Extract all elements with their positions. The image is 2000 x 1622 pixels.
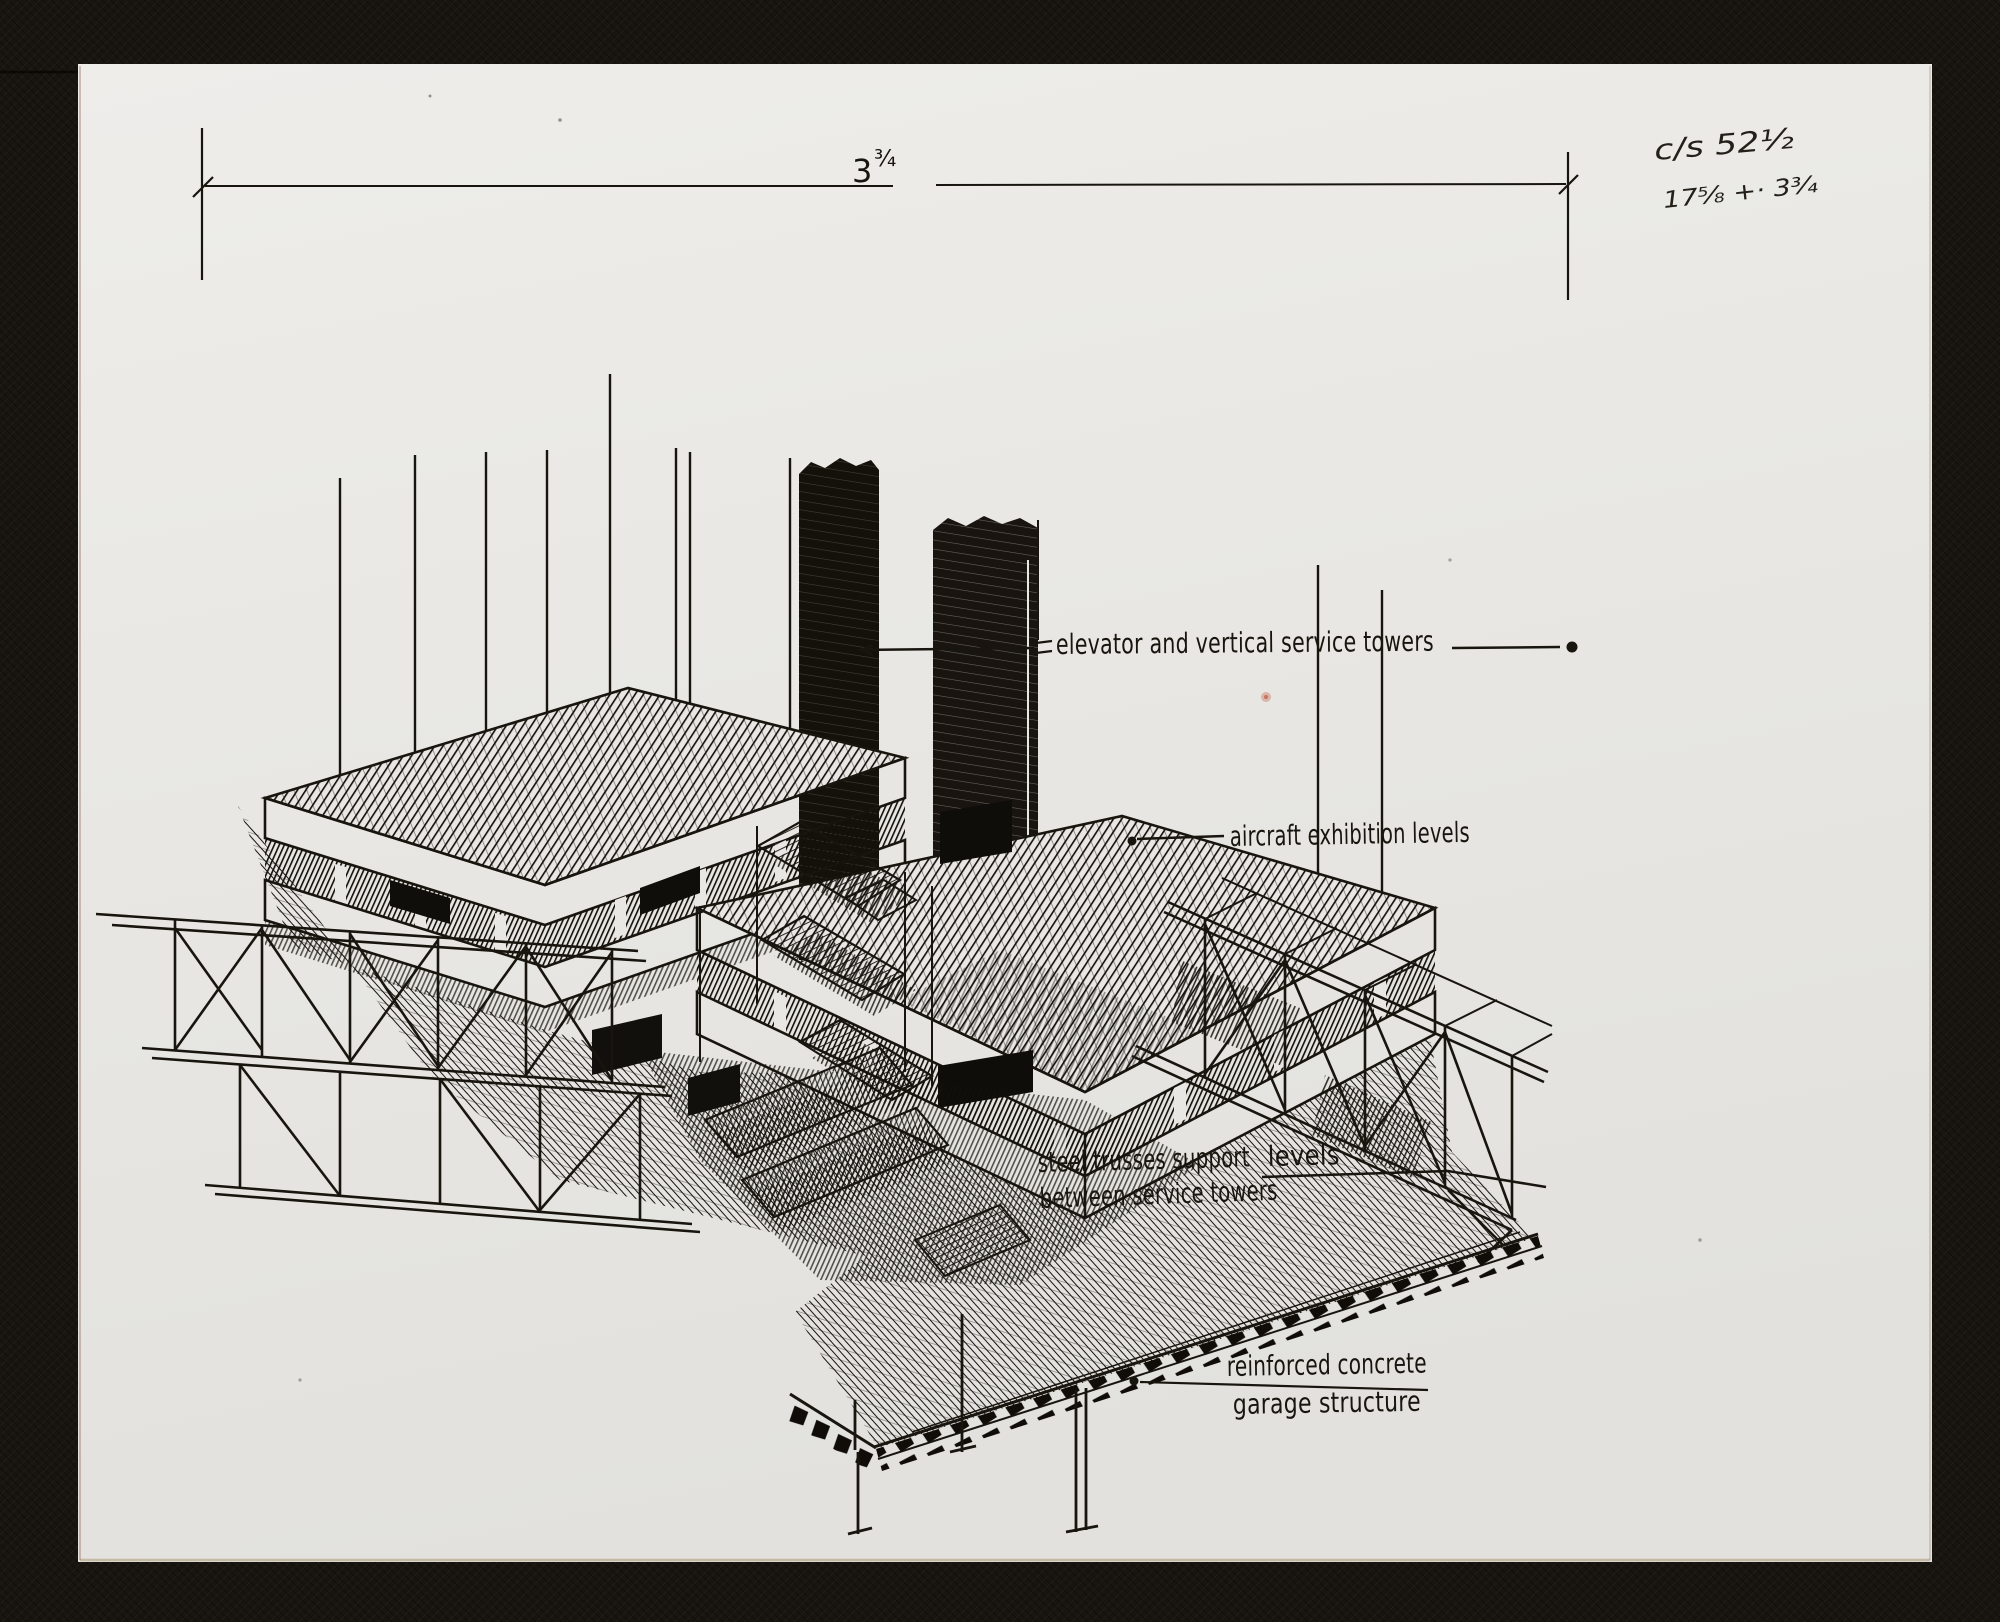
paper-speck [1448, 558, 1451, 561]
elevator-trailing-line [1452, 647, 1560, 648]
photographed-architectural-sketch: 3 ¾ c/s 52½ 17⅝ +· 3¾ [0, 0, 2000, 1622]
label-garage-line2: garage structure [1233, 1385, 1422, 1421]
paper-speck [298, 1378, 301, 1381]
paper-stain-core [1264, 695, 1268, 699]
aircraft-leader-dot [1128, 837, 1137, 846]
garage-leader-dot [1130, 1377, 1139, 1386]
right-slab-mullion [1174, 1082, 1186, 1125]
paper-speck [558, 118, 562, 122]
left-slab-mullion [335, 864, 346, 905]
label-garage-line1: reinforced concrete [1227, 1347, 1428, 1383]
elevator-leader-dot [1567, 642, 1578, 653]
dimension-value-whole: 3 [852, 152, 873, 190]
dimension-line-right-segment [936, 184, 1566, 185]
label-elevator: elevator and vertical service towers [1056, 625, 1434, 661]
dimension-value-fraction: ¾ [874, 146, 897, 172]
left-slab-mullion [495, 913, 506, 954]
label-trusses-levels: levels [1267, 1138, 1340, 1173]
paper-speck [429, 95, 432, 98]
label-trusses-part1: steel trusses support [1037, 1140, 1250, 1179]
paper-speck [1698, 1238, 1702, 1242]
label-aircraft: aircraft exhibition levels [1230, 816, 1471, 853]
right-slab-mullion [774, 991, 786, 1034]
left-slab-mullion [615, 896, 626, 938]
